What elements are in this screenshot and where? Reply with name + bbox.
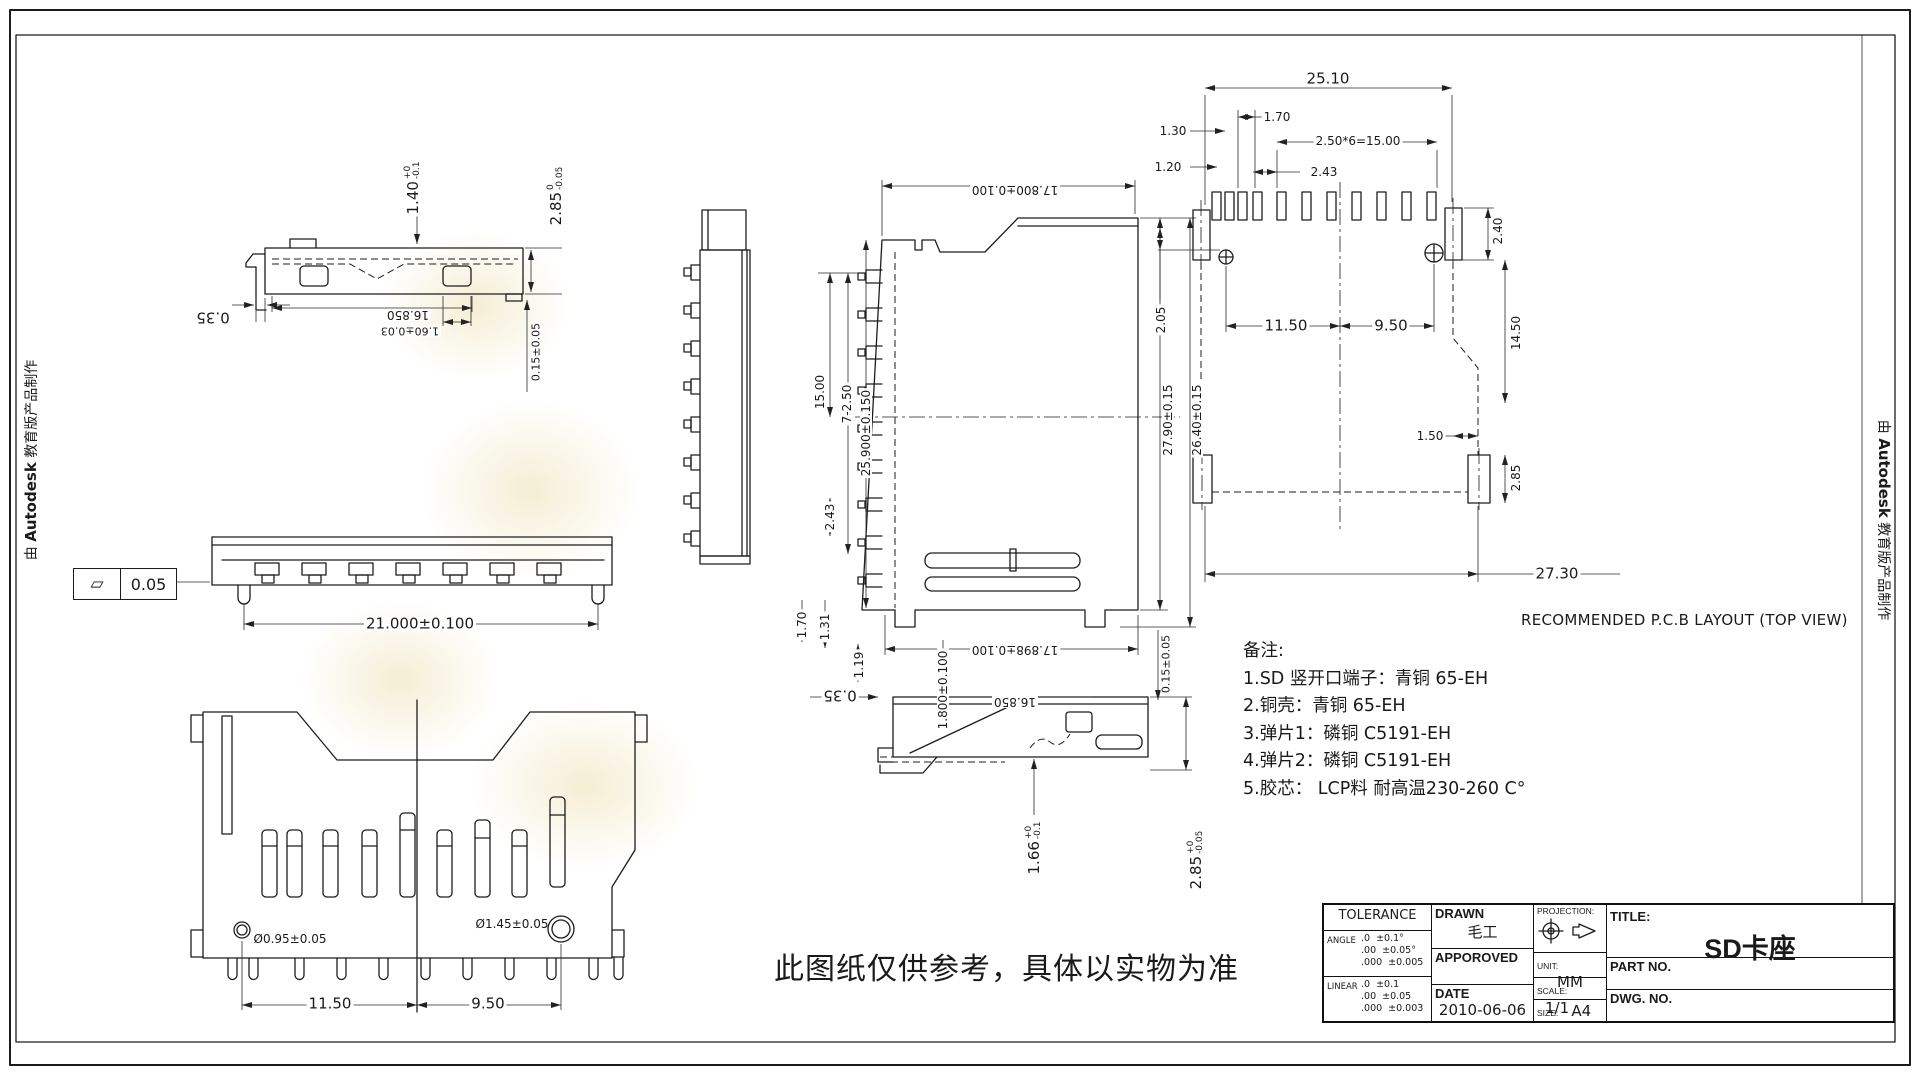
linear-row: .000 — [1361, 1003, 1382, 1015]
linear-tol: ±0.003 — [1388, 1003, 1423, 1015]
dim-140: 1.40 +0-0.1 — [404, 160, 422, 217]
notes-title: 备注: — [1243, 638, 1526, 666]
angle-row: .0 — [1361, 933, 1370, 945]
tolerance-title: TOLERANCE — [1327, 906, 1428, 923]
dim-015-section: 0.15±0.05 — [1161, 633, 1172, 695]
dim-166: 1.66 +0-0.1 — [1025, 820, 1043, 877]
date-value: 2010-06-06 — [1435, 1001, 1530, 1019]
approved-label: APPOROVED — [1435, 950, 1530, 965]
dim-120: 1.20 — [1153, 161, 1184, 173]
part-no-label: PART NO. — [1610, 959, 1890, 974]
dim-16850-section: 16.850 — [992, 696, 1038, 708]
dim-21000: 21.000±0.100 — [364, 617, 476, 632]
dim-170-pcb: 1.70 — [1262, 111, 1293, 123]
angle-tol: ±0.1° — [1376, 933, 1404, 945]
note-item: 2.铜壳：青铜 65-EH — [1243, 693, 1526, 721]
angle-label: ANGLE — [1327, 933, 1361, 969]
note-item: 4.弹片2：磷铜 C5191-EH — [1243, 748, 1526, 776]
hole-big-label: Ø1.45±0.05 — [474, 918, 551, 930]
projection-section: PROJECTION: UNIT: MM SCALE: 1/1 SIZE: — [1534, 905, 1607, 1021]
dim-130: 1.30 — [1158, 125, 1189, 137]
title-section: TITLE: SD卡座 PART NO. DWG. NO. — [1607, 905, 1893, 1021]
hole-small-label: Ø0.95±0.05 — [252, 933, 329, 945]
linear-tol: ±0.1 — [1376, 979, 1399, 991]
drawn-value: 毛工 — [1435, 921, 1530, 942]
angle-tol: ±0.05° — [1382, 945, 1416, 957]
pcb-pad-upper-left — [1193, 210, 1210, 260]
pcb-pad-upper-right — [1445, 208, 1462, 260]
view-pcb-layout — [1158, 88, 1620, 582]
dim-243-main: 2.43 — [824, 502, 836, 533]
dim-16850-top: 16.850 — [385, 309, 431, 321]
pcb-layout-title: RECOMMENDED P.C.B LAYOUT (TOP VIEW) — [1521, 611, 1848, 629]
note-item: 5.胶芯： LCP料 耐高温230-260 C° — [1243, 776, 1526, 804]
dim-035-top: 0.35 — [194, 310, 231, 325]
flatness-value: 0.05 — [121, 575, 176, 594]
scale-label: SCALE: — [1537, 986, 1567, 996]
dim-1150-plan: 11.50 — [307, 997, 354, 1012]
dim-7250: 7-2.50 — [841, 383, 853, 426]
dim-1800: 1.800±0.100 — [937, 649, 949, 732]
dim-170-main: 1.70 — [796, 610, 808, 641]
angle-tol: ±0.005 — [1388, 957, 1423, 969]
unit-label: UNIT: — [1537, 961, 1558, 971]
dim-035-section: 0.35 — [821, 688, 858, 703]
dim-285-pcb: 2.85 — [1510, 463, 1522, 494]
view-plan — [191, 700, 647, 1012]
date-label: DATE — [1435, 986, 1530, 1001]
linear-tol: ±0.05 — [1382, 991, 1411, 1003]
dim-015-top: 0.15±0.05 — [531, 321, 542, 383]
pcb-pad-lower-left — [1193, 455, 1212, 503]
flatness-icon: ▱ — [74, 569, 121, 599]
dim-950-pcb: 9.50 — [1372, 319, 1409, 334]
projection-label: PROJECTION: — [1537, 906, 1603, 916]
dim-243-pcb: 2.43 — [1309, 166, 1340, 178]
end-view-contacts — [684, 265, 700, 546]
title-label: TITLE: — [1610, 909, 1650, 924]
drawn-label: DRAWN — [1435, 906, 1530, 921]
dim-250x6: 2.50*6=15.00 — [1314, 135, 1403, 147]
dim-1450: 14.50 — [1510, 314, 1522, 352]
linear-row: .0 — [1361, 979, 1370, 991]
linear-label: LINEAR — [1327, 979, 1361, 1015]
dim-160: 1.60±0.03 — [379, 326, 441, 337]
signature-section: DRAWN 毛工 APPOROVED DATE 2010-06-06 — [1432, 905, 1534, 1021]
tolerance-section: TOLERANCE ANGLE .0±0.1° .00±0.05° .000±0… — [1324, 905, 1432, 1021]
angle-row: .00 — [1361, 945, 1376, 957]
dim-2510: 25.10 — [1305, 72, 1352, 87]
pcb-hole-left — [1219, 250, 1233, 264]
angle-row: .000 — [1361, 957, 1382, 969]
dim-285-top: 2.85 0-0.05 — [547, 165, 565, 228]
view-section — [810, 630, 1192, 815]
dim-2790: 27.90±0.15 — [1162, 382, 1174, 457]
dim-2640: 26.40±0.15 — [1191, 382, 1203, 457]
pcb-hole-right — [1425, 244, 1443, 262]
dim-131: 1.31 — [819, 612, 831, 643]
dim-1150-pcb: 11.50 — [1263, 319, 1310, 334]
disclaimer-text: 此图纸仅供参考，具体以实物为准 — [774, 944, 1239, 988]
flatness-callout: ▱ 0.05 — [73, 568, 177, 600]
size-label: SIZE: — [1537, 1008, 1558, 1018]
dim-2730: 27.30 — [1534, 567, 1581, 582]
view-end — [684, 210, 750, 564]
dim-285-section: 2.85 +0-0.05 — [1187, 829, 1205, 892]
drawing-sheet: 1.40 +0-0.1 2.85 0-0.05 0.35 16.850 1.60… — [0, 0, 1920, 1075]
title-block: TOLERANCE ANGLE .0±0.1° .00±0.05° .000±0… — [1322, 903, 1895, 1023]
dwg-no-label: DWG. NO. — [1610, 991, 1890, 1006]
dim-25900: 25.900±0.150 — [860, 388, 872, 478]
edge-note-right: 由 Autodesk 教育版产品制作 — [1874, 420, 1894, 620]
linear-row: .00 — [1361, 991, 1376, 1003]
note-item: 1.SD 竖开口端子：青铜 65-EH — [1243, 666, 1526, 694]
dim-205: 2.05 — [1155, 305, 1167, 336]
dim-950-plan: 9.50 — [469, 997, 506, 1012]
dim-119: 1.19 — [853, 650, 865, 681]
dim-17800: 17.800±0.100 — [970, 184, 1060, 196]
dim-17898: 17.898±0.100 — [970, 644, 1060, 656]
edge-note-left: 由 Autodesk 教育版产品制作 — [21, 360, 41, 560]
bottom-pins — [228, 958, 623, 980]
contact-slots — [262, 797, 565, 897]
pcb-top-pads — [1212, 192, 1436, 220]
note-item: 3.弹片1：磷铜 C5191-EH — [1243, 721, 1526, 749]
dim-1500: 15.00 — [814, 373, 826, 411]
dim-150: 1.50 — [1415, 430, 1446, 442]
view-side-top — [232, 205, 562, 392]
notes-block: 备注: 1.SD 竖开口端子：青铜 65-EH 2.铜壳：青铜 65-EH 3.… — [1243, 638, 1526, 804]
projection-icon — [1537, 916, 1601, 946]
dim-240: 2.40 — [1492, 216, 1504, 247]
size-value: A4 — [1571, 1002, 1591, 1020]
